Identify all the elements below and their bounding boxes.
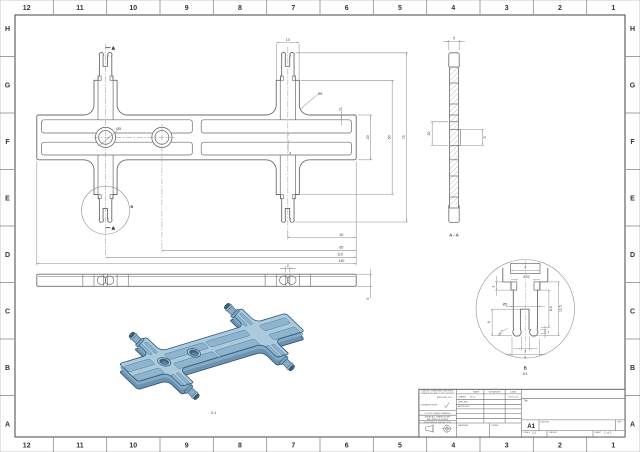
svg-text:11: 11 <box>76 442 84 449</box>
svg-text:D: D <box>630 252 635 259</box>
svg-text:DIMENSIONS ARE IN MILLIMETERS: DIMENSIONS ARE IN MILLIMETERS <box>421 392 455 395</box>
svg-text:DRAWN: DRAWN <box>458 396 466 399</box>
svg-text:4: 4 <box>451 5 455 12</box>
svg-text:3.32: 3.32 <box>523 275 530 279</box>
svg-text:H: H <box>5 26 10 33</box>
svg-text:B: B <box>5 365 10 372</box>
svg-text:A: A <box>112 226 115 230</box>
svg-text:10: 10 <box>129 5 137 12</box>
svg-text:9: 9 <box>185 442 189 449</box>
svg-text:DWG NO: DWG NO <box>541 422 550 424</box>
svg-text:E: E <box>5 195 10 202</box>
svg-text:D: D <box>5 252 10 259</box>
svg-text:12.5: 12.5 <box>558 305 562 312</box>
svg-text:5: 5 <box>453 36 455 40</box>
svg-text:SCALE: SCALE <box>524 431 531 434</box>
svg-text:140: 140 <box>338 259 344 263</box>
svg-text:6: 6 <box>345 5 349 12</box>
svg-text:B: B <box>524 366 527 371</box>
svg-text:6: 6 <box>345 442 349 449</box>
svg-text:4: 4 <box>289 151 291 155</box>
svg-text:NAME: NAME <box>473 391 480 394</box>
svg-text:85: 85 <box>339 246 343 250</box>
svg-text:2:1: 2:1 <box>211 411 216 415</box>
svg-text:75: 75 <box>402 135 406 139</box>
svg-text:F: F <box>5 139 10 146</box>
svg-text:MATERIAL: MATERIAL <box>458 424 469 427</box>
svg-text:DATE: DATE <box>511 391 517 394</box>
svg-text:3:1: 3:1 <box>532 431 537 435</box>
svg-text:Ø5: Ø5 <box>318 92 323 96</box>
svg-text:8.5: 8.5 <box>549 306 553 311</box>
svg-text:SHEET: SHEET <box>595 432 602 434</box>
svg-text:10: 10 <box>427 132 431 136</box>
svg-text:3: 3 <box>505 442 509 449</box>
svg-text:3: 3 <box>505 5 509 12</box>
svg-text:SIGNATURE: SIGNATURE <box>489 391 502 394</box>
svg-text:C: C <box>630 308 635 315</box>
svg-text:8: 8 <box>238 442 242 449</box>
svg-text:12: 12 <box>23 442 31 449</box>
svg-text:50: 50 <box>388 135 392 139</box>
svg-text:FIRST ANGLE PROJECTION: FIRST ANGLE PROJECTION <box>424 421 451 424</box>
svg-text:9: 9 <box>185 5 189 12</box>
svg-text:4: 4 <box>524 356 526 360</box>
svg-text:1 of 1: 1 of 1 <box>604 431 612 435</box>
svg-text:WEIGHT: WEIGHT <box>549 432 558 434</box>
svg-text:Ø5: Ø5 <box>116 127 121 131</box>
svg-text:G: G <box>5 82 11 89</box>
svg-text:AND REMOVE BURRS: AND REMOVE BURRS <box>427 418 449 421</box>
svg-text:A - A: A - A <box>449 232 458 237</box>
svg-text:12: 12 <box>23 5 31 12</box>
svg-text:5: 5 <box>398 442 402 449</box>
svg-text:7: 7 <box>291 5 295 12</box>
svg-text:1: 1 <box>611 5 615 12</box>
svg-text:2: 2 <box>491 285 495 287</box>
svg-text:FINISH: FINISH <box>492 425 499 427</box>
svg-text:4: 4 <box>524 265 526 269</box>
svg-text:ANGULAR: ±0.5°: ANGULAR: ±0.5° <box>437 396 453 399</box>
svg-text:7: 7 <box>291 442 295 449</box>
svg-text:6: 6 <box>487 321 491 323</box>
svg-text:Bruce: Bruce <box>470 396 476 399</box>
svg-text:30: 30 <box>339 233 343 237</box>
svg-text:A: A <box>630 421 635 428</box>
svg-text:2: 2 <box>287 264 289 268</box>
svg-text:DO NOT SCALE DRAWING: DO NOT SCALE DRAWING <box>425 412 451 415</box>
svg-text:G: G <box>630 82 636 89</box>
svg-text:110: 110 <box>337 253 343 257</box>
svg-text:2019-10-16: 2019-10-16 <box>508 397 519 399</box>
svg-text:SURFACE FINISH:: SURFACE FINISH: <box>421 404 439 407</box>
svg-text:10: 10 <box>129 442 137 449</box>
svg-text:E: E <box>630 195 635 202</box>
svg-text:REV: REV <box>618 422 623 424</box>
svg-text:A1: A1 <box>527 423 535 430</box>
svg-text:5: 5 <box>483 136 487 138</box>
svg-text:4: 4 <box>451 442 455 449</box>
svg-text:H: H <box>630 26 635 33</box>
svg-text:2: 2 <box>524 349 526 353</box>
svg-text:1: 1 <box>611 442 615 449</box>
svg-text:CHECKED: CHECKED <box>458 402 469 404</box>
svg-text:8:1: 8:1 <box>523 372 528 376</box>
svg-text:5: 5 <box>366 298 370 300</box>
svg-text:2: 2 <box>558 5 562 12</box>
svg-text:20: 20 <box>366 135 370 139</box>
svg-text:Ø5: Ø5 <box>503 302 508 306</box>
svg-text:A: A <box>5 421 10 428</box>
svg-text:F: F <box>630 139 635 146</box>
svg-text:B: B <box>131 205 134 209</box>
svg-text:10: 10 <box>286 38 290 42</box>
svg-text:2: 2 <box>558 442 562 449</box>
svg-text:A: A <box>112 46 115 50</box>
svg-text:8: 8 <box>238 5 242 12</box>
svg-text:C: C <box>5 308 10 315</box>
svg-text:11: 11 <box>76 5 84 12</box>
svg-text:5: 5 <box>398 5 402 12</box>
svg-text:2: 2 <box>339 108 341 112</box>
svg-text:APPROVED: APPROVED <box>458 405 470 408</box>
svg-text:B: B <box>630 365 635 372</box>
svg-text:Title: Title <box>524 400 529 403</box>
